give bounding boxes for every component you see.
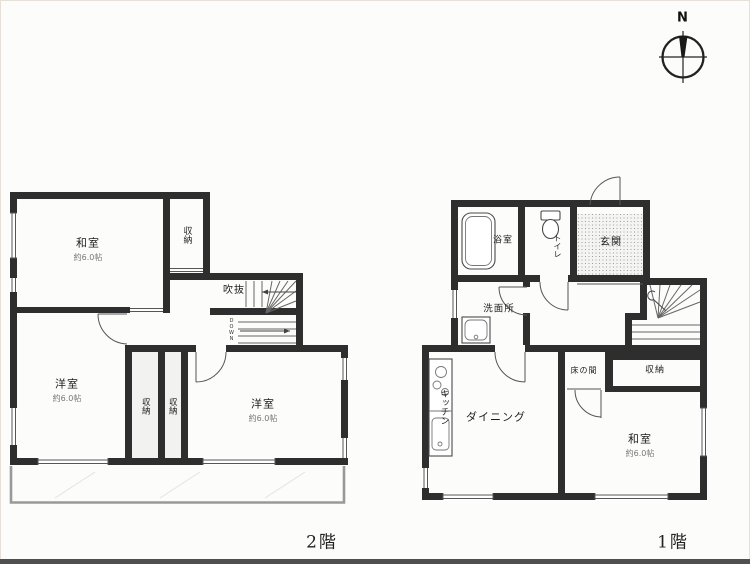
floor2-plan <box>10 192 348 503</box>
floor1-washroom-label: 洗面所 <box>483 304 515 314</box>
floor1-entrance-label: 玄関 <box>600 238 622 248</box>
door-washitsu <box>575 390 601 418</box>
floor1-dining-label: ダイニング <box>466 412 526 423</box>
floor1-title: 1階 <box>657 535 689 552</box>
compass-north-label: N <box>677 12 689 25</box>
floor1-closet-label: 収納 <box>645 367 665 376</box>
floor2-title: 2階 <box>306 535 338 552</box>
floor2-fukinuke-label: 吹抜 <box>223 286 245 296</box>
door-youshitsu-left <box>98 314 127 344</box>
floor2-washitsu-size: 約6.0帖 <box>74 254 103 262</box>
compass-icon <box>659 31 707 83</box>
floorplan-canvas: 和室 約6.0帖 収納 吹抜 DOWN 洋室 約6.0帖 収納 収納 洋室 約6… <box>0 0 750 564</box>
floor1-bathroom-label: 浴室 <box>493 237 513 246</box>
bottom-strip <box>0 559 750 564</box>
floor1-washitsu-label: 和室 <box>628 434 652 445</box>
floor1-washitsu-size: 約6.0帖 <box>626 450 655 458</box>
floor2-balcony <box>11 466 344 503</box>
door-toilet <box>540 282 568 310</box>
floor1-plan <box>422 177 707 500</box>
bathtub-icon <box>462 213 495 269</box>
floor2-youshitsu-right-size: 約6.0帖 <box>249 415 278 423</box>
floor2-youshitsu-right-label: 洋室 <box>251 399 275 410</box>
floor2-closet-b-label: 収納 <box>168 398 177 415</box>
floorplan-linework <box>0 0 750 564</box>
door-dining <box>495 352 525 382</box>
compass-north-pointer <box>679 36 688 57</box>
sink-icon <box>462 317 490 343</box>
floor2-closet-a-label: 収納 <box>141 398 150 415</box>
floor1-kitchen-label: キッチン <box>439 389 448 425</box>
floor2-washitsu-label: 和室 <box>76 238 100 249</box>
floor2-closet-top-label: 収納 <box>182 226 191 244</box>
floor2-stair-direction-label: DOWN <box>229 318 234 342</box>
floor1-tokonoma-label: 床の間 <box>571 367 598 375</box>
floor2-youshitsu-left-label: 洋室 <box>55 379 79 390</box>
door-youshitsu-right <box>196 352 226 382</box>
floor1-toilet-label: トイレ <box>553 234 561 258</box>
floor2-youshitsu-left-size: 約6.0帖 <box>53 395 82 403</box>
